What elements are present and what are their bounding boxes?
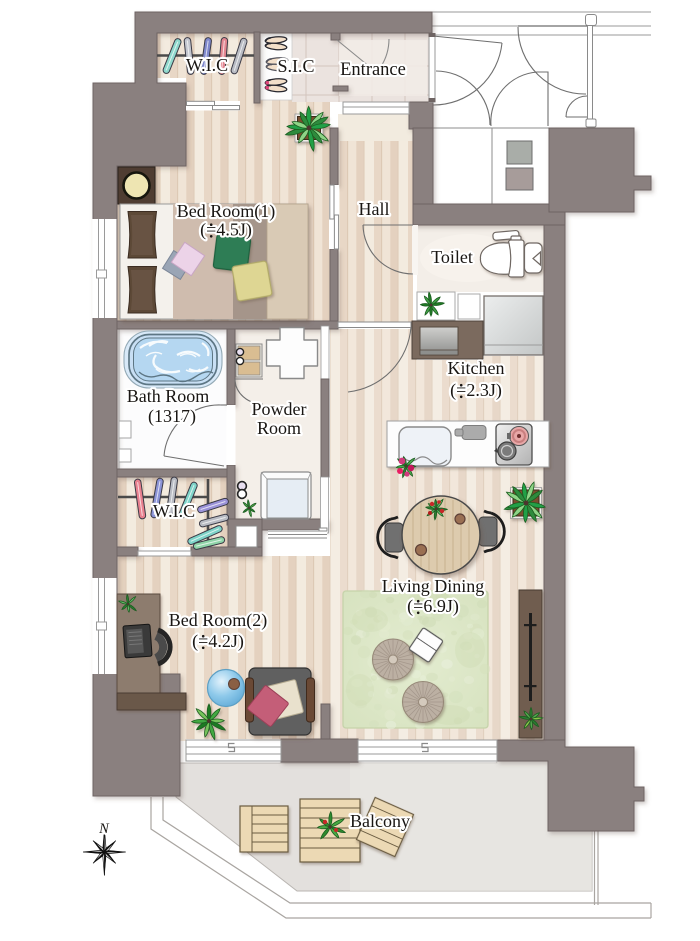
svg-text:Powder: Powder [252, 399, 307, 419]
svg-text:Kitchen: Kitchen [448, 358, 505, 378]
svg-text:Hall: Hall [359, 199, 390, 219]
svg-text:S.I.C: S.I.C [277, 56, 314, 76]
svg-text:(=2.3J): (=2.3J) [450, 380, 502, 401]
svg-text:W.I.C: W.I.C [153, 501, 195, 521]
svg-text:(1317): (1317) [148, 406, 196, 427]
svg-text:(=4.5J): (=4.5J) [200, 220, 252, 241]
svg-text:Room: Room [257, 418, 301, 438]
svg-text:N: N [98, 821, 110, 837]
svg-text:(=6.9J): (=6.9J) [407, 596, 459, 617]
svg-text:(=4.2J): (=4.2J) [192, 631, 244, 652]
svg-text:Balcony: Balcony [350, 811, 410, 831]
svg-text:Entrance: Entrance [340, 60, 406, 80]
svg-text:Living Dining: Living Dining [382, 576, 485, 596]
svg-text:Bed Room(2): Bed Room(2) [169, 610, 268, 631]
svg-text:Toilet: Toilet [431, 247, 473, 267]
svg-text:W.I.C: W.I.C [186, 55, 228, 75]
svg-text:Bath Room: Bath Room [127, 386, 210, 406]
